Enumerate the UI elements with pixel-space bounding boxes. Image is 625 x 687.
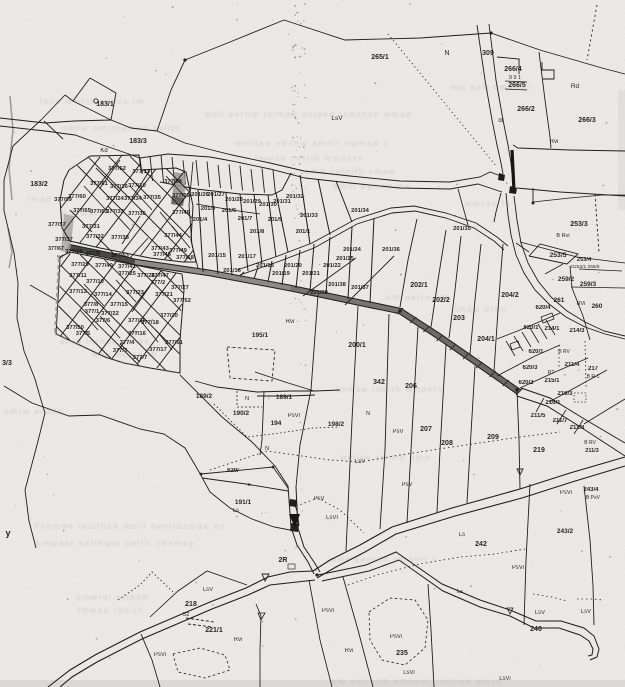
svg-text:377/45: 377/45 [172,210,191,216]
svg-text:3/3: 3/3 [2,360,12,367]
svg-text:dr: dr [498,118,503,124]
svg-text:9 9 1: 9 9 1 [509,75,521,81]
svg-text:PsVi: PsVi [390,634,402,640]
svg-text:206: 206 [405,383,417,390]
svg-text:620/2: 620/2 [518,380,534,386]
svg-text:204/1: 204/1 [477,336,495,343]
svg-text:Rvi: Rvi [550,139,559,145]
svg-text:B RV: B RV [584,440,596,446]
svg-text:253/4: 253/4 [577,257,592,263]
svg-text:208: 208 [441,440,453,447]
svg-text:260: 260 [592,303,603,310]
svg-text:377/13: 377/13 [69,289,88,295]
svg-text:218: 218 [185,601,197,608]
svg-text:259/2: 259/2 [558,276,575,283]
svg-text:Ls: Ls [459,532,465,538]
svg-text:LsVi: LsVi [499,676,511,682]
svg-text:377/7: 377/7 [133,355,148,361]
svg-text:PsV: PsV [401,482,412,488]
svg-text:191/1: 191/1 [235,499,252,506]
svg-text:Rvi: Rvi [234,637,243,643]
svg-text:377/36: 377/36 [128,211,147,217]
svg-text:266/3: 266/3 [578,117,596,124]
svg-text:LsV: LsV [331,115,343,122]
svg-text:201/8: 201/8 [250,229,265,235]
svg-text:215/1: 215/1 [544,378,560,384]
svg-text:377/6: 377/6 [96,318,111,324]
svg-text:377/10: 377/10 [86,279,104,285]
svg-text:wm aelrnith smaewr lnithae wmr: wm aelrnith smaewr lnithae wmrs [329,676,502,686]
svg-text:Rvi: Rvi [345,648,354,654]
svg-text:Rd: Rd [571,83,580,90]
svg-text:201/4: 201/4 [193,217,208,223]
svg-text:LsV: LsV [535,610,545,616]
svg-text:377/69: 377/69 [172,193,191,199]
svg-text:201/39: 201/39 [310,290,329,296]
svg-text:377/57: 377/57 [48,222,66,228]
svg-text:195/1: 195/1 [252,332,269,339]
svg-text:377/25: 377/25 [118,271,137,277]
svg-text:lmwae rnsith: lmwae rnsith [78,605,144,615]
svg-text:377/23: 377/23 [126,290,145,296]
svg-text:377/20: 377/20 [160,313,178,319]
svg-text:Ls: Ls [233,508,239,514]
svg-text:B Rvi: B Rvi [556,233,569,239]
svg-text:209: 209 [487,434,499,441]
svg-text:lmwae rnsith wmaers: lmwae rnsith wmaers [255,153,363,163]
svg-text:377/65: 377/65 [73,208,92,214]
svg-text:377/24: 377/24 [106,196,125,202]
svg-text:201/7: 201/7 [238,216,253,222]
svg-text:amw relnith smae: amw relnith smae [305,166,396,176]
svg-text:PsVi: PsVi [154,652,166,658]
svg-text:Rvi: Rvi [286,319,295,325]
svg-text:wmrlae nsithw amelr nwmae s: wmrlae nsithw amelr nwmae s [234,138,389,148]
svg-text:211/7: 211/7 [553,418,568,424]
svg-text:377/10: 377/10 [128,183,146,189]
svg-text:377/41: 377/41 [118,264,137,270]
svg-text:189/2: 189/2 [196,393,213,400]
svg-text:216/3: 216/3 [557,391,573,397]
svg-text:377/38: 377/38 [111,235,130,241]
svg-text:259/3: 259/3 [580,281,597,288]
svg-text:LsVi: LsVi [403,670,415,676]
svg-text:G253/1 255/6: G253/1 255/6 [570,264,599,270]
svg-text:211/5: 211/5 [531,413,546,419]
svg-text:PsV: PsV [392,429,403,435]
svg-text:377/49: 377/49 [169,248,188,254]
svg-text:R?: R? [548,370,555,376]
svg-text:201/17: 201/17 [238,254,256,260]
svg-text:242: 242 [475,541,487,548]
svg-text:377/40: 377/40 [95,263,113,269]
svg-text:Prwmae lsnithae wmrl aenithsma: Prwmae lsnithae wmrl aenithsmae wr [34,521,226,531]
svg-text:LsV: LsV [203,587,213,593]
svg-text:201/16: 201/16 [223,268,242,274]
svg-text:B PsV: B PsV [586,495,601,501]
svg-text:201/25: 201/25 [336,256,355,262]
svg-text:377/15: 377/15 [110,302,129,308]
svg-text:261: 261 [554,297,565,304]
svg-text:235: 235 [396,650,408,657]
svg-text:377/21: 377/21 [155,292,174,298]
svg-text:377/31: 377/31 [82,224,101,230]
svg-text:wmrae ls: wmrae ls [464,198,511,208]
svg-text:377/67: 377/67 [48,246,64,252]
svg-text:377/51: 377/51 [165,340,184,346]
svg-text:377/14: 377/14 [94,292,113,298]
svg-text:Ls: Ls [457,589,463,595]
svg-text:219: 219 [533,447,545,454]
svg-text:183/3: 183/3 [129,138,147,145]
svg-text:LsV: LsV [581,609,591,615]
svg-text:N: N [444,50,449,57]
svg-text:377/34: 377/34 [124,196,143,202]
svg-text:201/18: 201/18 [256,263,275,269]
svg-text:266/4: 266/4 [504,66,522,73]
svg-text:216/1: 216/1 [545,400,561,406]
svg-text:190/2: 190/2 [233,410,250,417]
svg-text:377/61: 377/61 [90,181,109,187]
svg-text:lmaw ersn: lmaw ersn [455,304,507,314]
svg-text:620/1: 620/1 [528,349,544,355]
svg-text:N: N [265,446,269,452]
svg-text:377/33: 377/33 [106,209,125,215]
svg-text:217: 217 [588,366,599,372]
svg-text:620/: 620/ [227,468,239,474]
svg-text:342: 342 [373,379,385,386]
svg-text:LsV: LsV [355,459,365,465]
svg-text:PsVi: PsVi [560,490,572,496]
svg-text:377/30: 377/30 [65,249,83,255]
svg-text:377/37: 377/37 [55,237,73,243]
svg-text:243/2: 243/2 [557,528,574,535]
svg-text:377/4: 377/4 [120,340,135,346]
svg-text:RVi: RVi [577,301,586,307]
svg-text:201/32: 201/32 [286,194,304,200]
svg-text:Sz: Sz [182,612,189,618]
svg-text:377/9: 377/9 [86,251,101,257]
svg-text:198/2: 198/2 [328,421,345,428]
svg-text:377/11: 377/11 [69,273,87,279]
svg-text:377/16: 377/16 [110,184,129,190]
svg-text:201/28: 201/28 [225,197,244,203]
svg-text:201/35: 201/35 [453,226,472,232]
svg-text:377/18: 377/18 [141,320,160,326]
svg-text:amwrel nithsm: amwrel nithsm [76,592,150,602]
svg-text:377/16: 377/16 [128,331,147,337]
svg-text:201/38: 201/38 [328,282,347,288]
svg-text:y: y [5,528,10,538]
svg-text:201/20: 201/20 [284,263,302,269]
svg-text:377/35: 377/35 [143,195,162,201]
svg-text:377/5: 377/5 [76,331,91,337]
svg-text:PsVI: PsVI [288,413,301,419]
svg-text:183/2: 183/2 [30,181,48,188]
svg-text:377/3: 377/3 [113,348,128,354]
svg-text:200/1: 200/1 [348,342,366,349]
svg-text:201/33: 201/33 [300,213,319,219]
svg-text:377/53: 377/53 [111,253,130,259]
svg-text:207: 207 [420,426,432,433]
svg-text:lmae: lmae [28,194,52,204]
svg-text:377/11: 377/11 [132,169,150,175]
svg-text:LsVI: LsVI [326,515,338,521]
svg-text:201/1: 201/1 [296,229,311,235]
svg-text:B R-1: B R-1 [587,374,600,380]
svg-text:377/48: 377/48 [153,252,172,258]
svg-text:377/62: 377/62 [108,166,126,172]
svg-text:B RV: B RV [558,349,570,355]
svg-text:201/9: 201/9 [268,217,283,223]
svg-text:377/59: 377/59 [54,197,73,203]
svg-text:377/29: 377/29 [71,262,90,268]
svg-text:377/27: 377/27 [171,285,189,291]
svg-text:309: 309 [482,50,494,57]
svg-text:377/32: 377/32 [86,234,104,240]
svg-text:wml aernm tslmae wriaen lsmtha: wml aernm tslmae wriaen lsmthae wmae [204,109,413,119]
svg-text:221/1: 221/1 [205,627,223,634]
svg-text:201/21: 201/21 [302,271,321,277]
svg-text:Kd: Kd [100,148,107,154]
svg-text:201/15: 201/15 [208,253,227,259]
svg-text:194: 194 [271,420,282,427]
svg-text:PsVi: PsVi [322,608,334,614]
svg-text:214/3: 214/3 [569,328,585,334]
svg-text:203: 203 [453,315,465,322]
svg-text:265/1: 265/1 [371,54,389,61]
svg-text:253/5: 253/5 [549,252,566,259]
svg-text:243/4: 243/4 [583,487,599,493]
svg-text:PsVi: PsVi [512,565,524,571]
svg-text:201/5: 201/5 [201,206,216,212]
svg-text:201/34: 201/34 [351,208,370,214]
svg-text:204/2: 204/2 [501,292,519,299]
svg-text:N: N [245,396,249,402]
svg-text:wmlae rsnith amw: wmlae rsnith amw [339,452,432,462]
svg-text:620/4: 620/4 [535,305,551,311]
svg-text:377/8: 377/8 [84,302,99,308]
svg-text:253/3: 253/3 [570,221,588,228]
svg-text:2R: 2R [279,557,288,564]
svg-text:240: 240 [530,626,542,633]
svg-text:183/1: 183/1 [96,101,114,108]
svg-text:lmwae rnsith wmaers: lmwae rnsith wmaers [336,384,444,394]
svg-text:214/1: 214/1 [544,326,560,332]
svg-text:377/18: 377/18 [176,255,195,261]
svg-text:211/4: 211/4 [565,362,580,368]
svg-text:PsV: PsV [313,496,324,502]
svg-text:377/52: 377/52 [173,298,191,304]
svg-text:377/22: 377/22 [101,311,119,317]
svg-text:377/1: 377/1 [85,309,100,315]
svg-text:377/17: 377/17 [149,347,167,353]
svg-text:377/26: 377/26 [137,273,156,279]
svg-text:201/19: 201/19 [272,271,291,277]
svg-text:Kd: Kd [57,254,63,259]
svg-text:211/3: 211/3 [585,448,598,454]
svg-text:211/8: 211/8 [570,425,585,431]
svg-text:202/1: 202/1 [410,282,428,289]
svg-text:266/2: 266/2 [517,106,535,113]
svg-text:201/22: 201/22 [323,263,341,269]
svg-text:201/36: 201/36 [382,247,401,253]
svg-text:201/27: 201/27 [207,192,225,198]
svg-text:377/44: 377/44 [164,233,183,239]
svg-text:201/6: 201/6 [222,208,237,214]
svg-text:189/1: 189/1 [276,394,293,401]
svg-text:Lmwaer snithwm aelrn ithsmae: Lmwaer snithwm aelrn ithsmae [36,538,195,548]
svg-text:201/37: 201/37 [351,285,369,291]
svg-text:N: N [366,411,370,417]
svg-text:202/2: 202/2 [432,297,450,304]
svg-text:620/3: 620/3 [522,365,538,371]
svg-text:201/24: 201/24 [343,247,362,253]
svg-text:620/1: 620/1 [523,325,539,331]
svg-text:266/5: 266/5 [508,82,526,89]
svg-text:377/68: 377/68 [164,179,183,185]
svg-text:377/2: 377/2 [151,280,166,286]
